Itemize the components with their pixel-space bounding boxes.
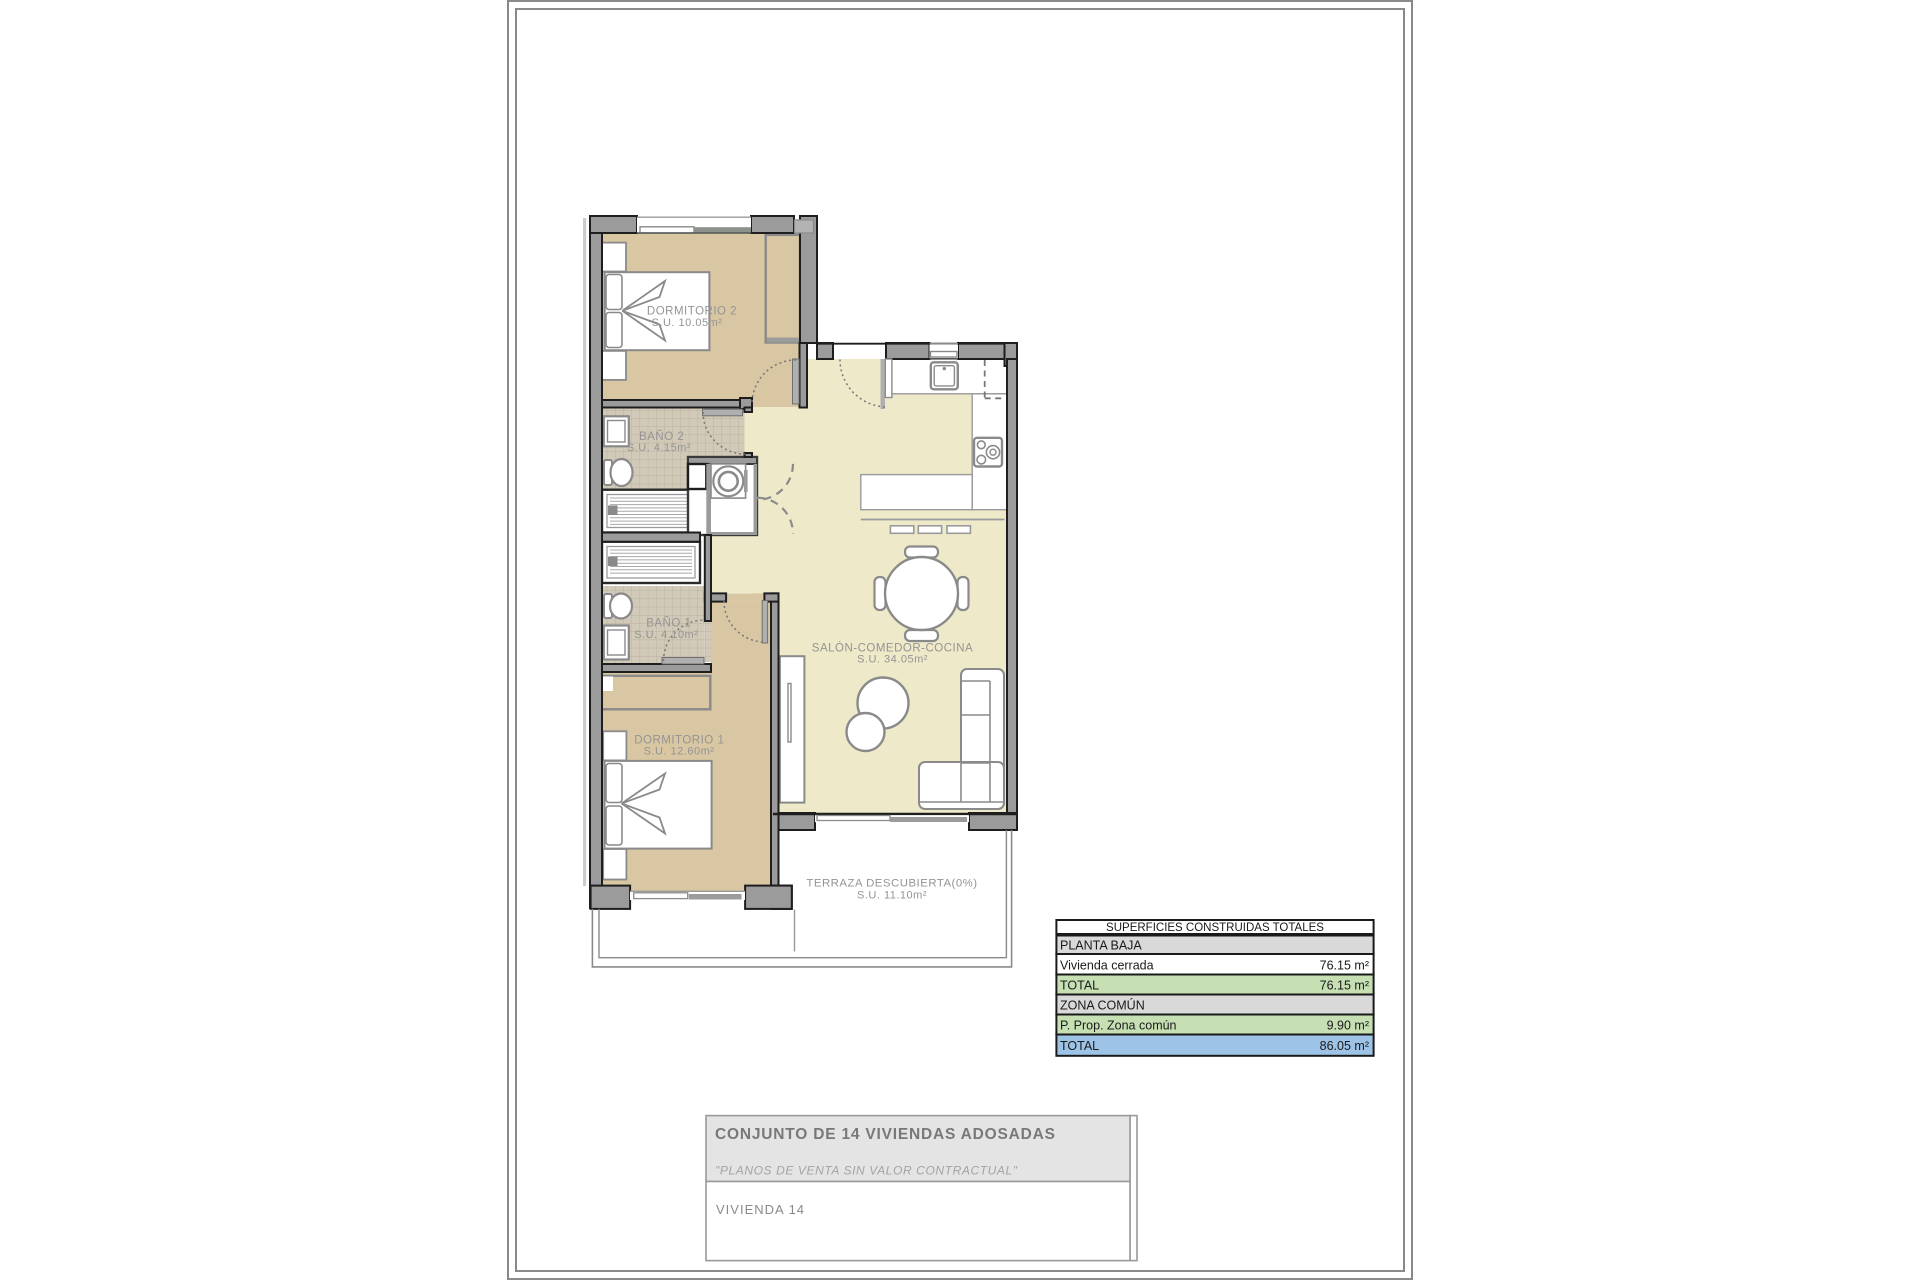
svg-text:76.15 m²: 76.15 m² [1320, 959, 1369, 973]
svg-text:S.U. 10.05m²: S.U. 10.05m² [652, 317, 723, 329]
svg-text:S.U. 34.05m²: S.U. 34.05m² [857, 654, 928, 666]
svg-text:TOTAL: TOTAL [1060, 979, 1099, 993]
svg-text:S.U. 12.60m²: S.U. 12.60m² [644, 746, 715, 758]
svg-text:TOTAL: TOTAL [1060, 1039, 1099, 1053]
svg-text:"PLANOS DE VENTA SIN VALOR CON: "PLANOS DE VENTA SIN VALOR CONTRACTUAL" [715, 1164, 1018, 1178]
svg-text:Vivienda cerrada: Vivienda cerrada [1060, 959, 1154, 973]
svg-text:DORMITORIO 2: DORMITORIO 2 [647, 306, 737, 318]
svg-text:CONJUNTO DE 14 VIVIENDAS ADOSA: CONJUNTO DE 14 VIVIENDAS ADOSADAS [715, 1126, 1056, 1143]
svg-text:86.05 m²: 86.05 m² [1320, 1039, 1369, 1053]
svg-text:SUPERFICIES CONSTRUIDAS TOTALE: SUPERFICIES CONSTRUIDAS TOTALES [1106, 922, 1324, 934]
svg-text:BAÑO 1: BAÑO 1 [646, 617, 691, 630]
svg-text:76.15 m²: 76.15 m² [1320, 979, 1369, 993]
svg-text:S.U. 11.10m²: S.U. 11.10m² [857, 890, 927, 902]
svg-text:PLANTA BAJA: PLANTA BAJA [1060, 939, 1142, 953]
svg-text:9.90 m²: 9.90 m² [1327, 1019, 1369, 1033]
svg-text:ZONA COMÚN: ZONA COMÚN [1060, 998, 1145, 1013]
svg-text:P. Prop. Zona común: P. Prop. Zona común [1060, 1019, 1177, 1033]
svg-text:S.U. 4.15m²: S.U. 4.15m² [627, 442, 691, 454]
svg-text:TERRAZA DESCUBIERTA(0%): TERRAZA DESCUBIERTA(0%) [806, 878, 977, 890]
svg-text:VIVIENDA 14: VIVIENDA 14 [716, 1202, 805, 1217]
svg-text:S.U. 4.10m²: S.U. 4.10m² [634, 629, 698, 641]
